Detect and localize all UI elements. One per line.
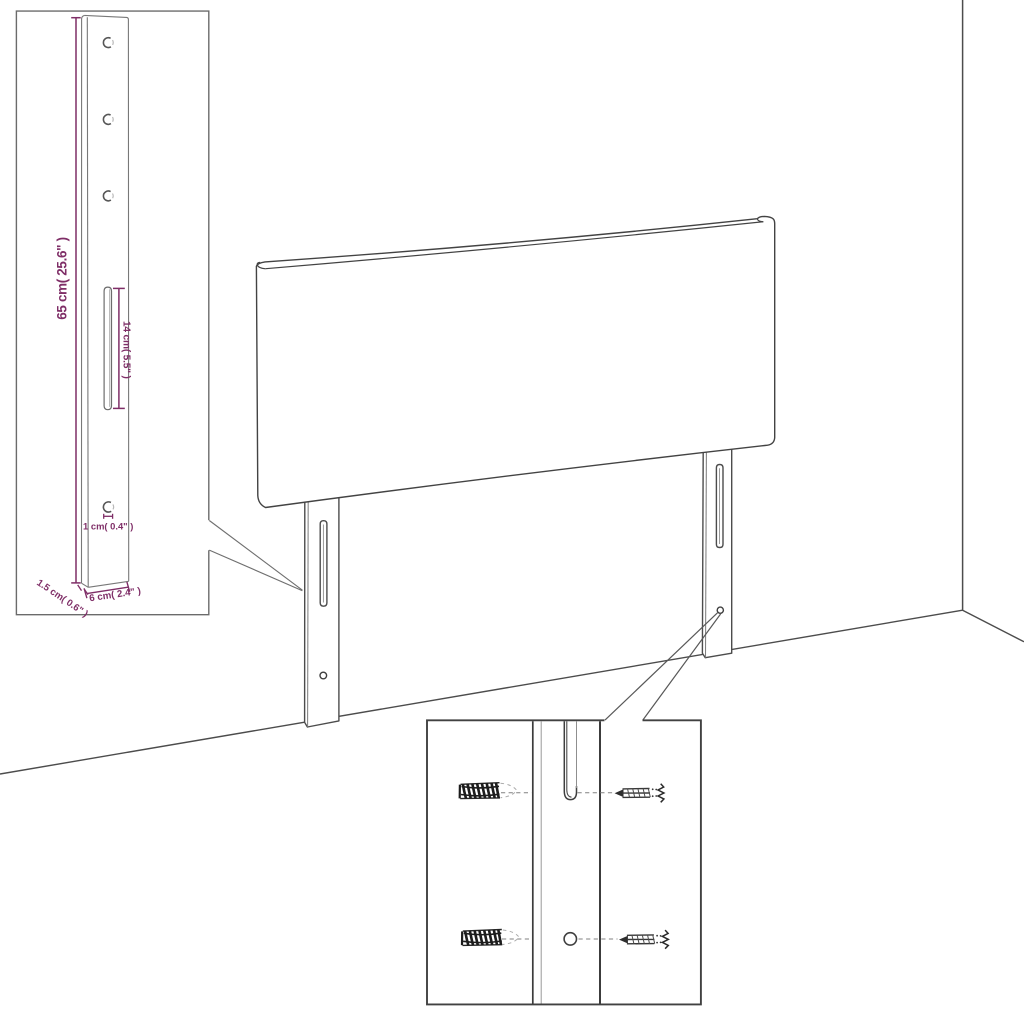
svg-text:65 cm( 25.6" ): 65 cm( 25.6" ) bbox=[54, 237, 69, 320]
svg-text:1 cm( 0.4" ): 1 cm( 0.4" ) bbox=[83, 520, 133, 531]
svg-text:14 cm( 5.5" ): 14 cm( 5.5" ) bbox=[121, 321, 132, 379]
